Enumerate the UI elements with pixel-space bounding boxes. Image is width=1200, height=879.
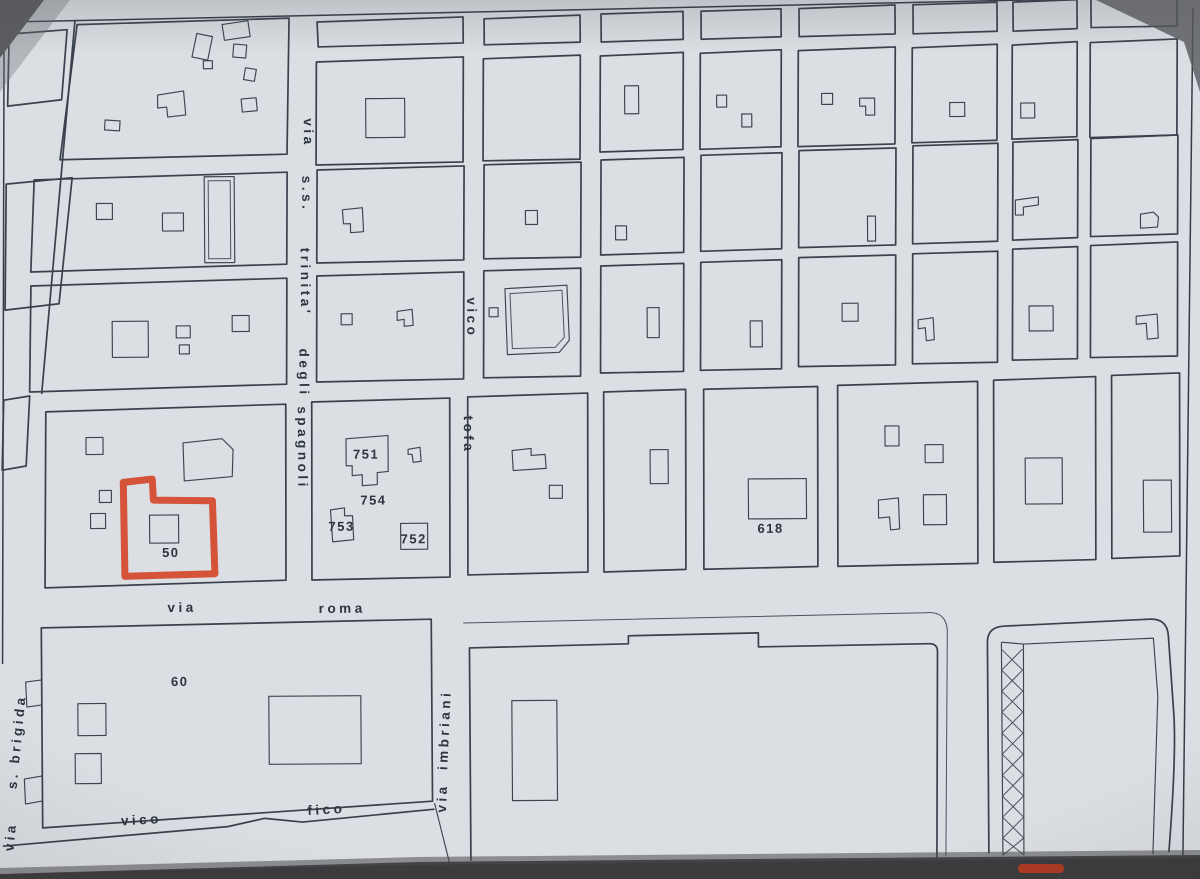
inner-block-lines	[1001, 638, 1159, 855]
city-block	[912, 251, 999, 364]
city-block	[699, 50, 782, 150]
building-footprint	[397, 309, 413, 326]
building-footprint	[867, 216, 875, 241]
building-cluster	[104, 21, 258, 131]
building-footprint	[822, 93, 833, 104]
city-block	[837, 381, 979, 566]
building-footprint	[505, 285, 569, 354]
parcel-number-752: 752	[401, 531, 427, 546]
building-footprint	[1021, 103, 1035, 118]
street-word: s.s.	[299, 176, 314, 213]
street-word: degli	[296, 349, 311, 398]
building-footprint	[650, 450, 668, 484]
building-footprint	[408, 447, 421, 462]
building-footprint	[616, 226, 627, 240]
city-block	[599, 52, 684, 152]
red-mark-bottom	[1018, 864, 1064, 873]
street-label-roma: via roma	[167, 599, 365, 617]
building-footprint	[925, 445, 943, 463]
building-footprint	[176, 326, 190, 338]
city-block	[41, 619, 432, 828]
highlighted-parcel-outline[interactable]	[123, 479, 215, 577]
building-footprint	[86, 437, 103, 454]
building-footprint	[179, 345, 189, 354]
city-block	[798, 148, 897, 248]
building-footprint	[512, 448, 546, 470]
building-footprint	[525, 210, 537, 224]
building-footprint	[1015, 197, 1038, 215]
city-block	[1089, 39, 1178, 138]
city-block	[912, 143, 999, 244]
city-block	[315, 57, 464, 165]
city-block	[316, 166, 465, 263]
city-block	[316, 272, 465, 382]
city-block	[1012, 247, 1079, 360]
city-block	[701, 9, 781, 40]
building-footprint	[24, 776, 42, 804]
building-footprint	[748, 479, 806, 519]
street-word: trinita'	[298, 248, 313, 317]
city-block	[993, 377, 1097, 563]
building-footprint	[878, 498, 899, 530]
building-footprint	[269, 696, 361, 765]
building-footprint	[75, 753, 101, 783]
city-block	[700, 260, 783, 371]
city-block	[482, 55, 581, 161]
building-footprint	[510, 290, 564, 348]
city-block	[603, 389, 687, 572]
city-block	[600, 263, 685, 373]
parcel-number-60: 60	[171, 674, 189, 689]
building-footprint	[647, 308, 659, 338]
city-block	[799, 5, 895, 37]
building-footprint	[923, 495, 946, 525]
city-block	[797, 47, 896, 147]
city-block	[1090, 242, 1179, 358]
cadastral-map-photo: via s.s. trinita' degli spagnoli vico to…	[0, 0, 1200, 879]
building-footprint	[885, 426, 899, 446]
building-footprint	[232, 315, 249, 331]
photo-edge-top-right	[1096, 0, 1200, 92]
city-block	[44, 404, 287, 588]
building-footprint	[78, 703, 106, 735]
building-footprint	[860, 98, 875, 115]
city-block	[600, 157, 685, 255]
building-footprint	[1140, 212, 1158, 228]
building-footprint	[1143, 480, 1171, 532]
building-footprint	[208, 181, 231, 259]
city-block	[798, 255, 897, 367]
building-footprint	[918, 318, 934, 341]
city-block	[1011, 42, 1078, 139]
city-block	[2, 396, 31, 470]
block-outer-curb	[463, 612, 949, 859]
building-footprint	[1025, 458, 1062, 504]
building-footprint	[625, 86, 639, 114]
city-block	[469, 632, 939, 861]
street-line-vico-fico	[3, 809, 435, 846]
building-footprint	[489, 308, 498, 317]
building-footprint	[150, 515, 179, 543]
building-footprint	[26, 680, 42, 707]
street-label-spagnoli: via s.s. trinita' degli spagnoli	[293, 118, 319, 490]
building-footprint	[750, 321, 762, 347]
city-block	[1111, 373, 1181, 558]
map-sheet: via s.s. trinita' degli spagnoli vico to…	[0, 0, 1199, 879]
street-word: imbriani	[435, 689, 454, 770]
building-footprint	[112, 321, 148, 357]
building-footprint	[512, 700, 558, 800]
street-word: vico	[464, 297, 479, 338]
city-block	[911, 44, 998, 143]
city-block	[467, 393, 589, 575]
city-block	[29, 278, 288, 392]
city-block	[987, 619, 1175, 853]
building-footprint	[1029, 306, 1053, 331]
building-footprint	[366, 98, 405, 137]
city-block	[59, 18, 290, 160]
city-block	[317, 17, 463, 47]
building-footprint	[96, 203, 112, 219]
street-word: via	[434, 783, 450, 813]
city-block	[4, 178, 73, 310]
parcel-number-618: 618	[757, 521, 783, 536]
parcel-number-751: 751	[353, 447, 379, 462]
city-block	[311, 398, 451, 580]
street-word: tofa	[461, 415, 476, 454]
building-footprint	[717, 95, 727, 107]
city-block	[484, 15, 580, 45]
city-block	[601, 11, 683, 42]
photo-edge-top-left-fade	[0, 0, 70, 92]
street-word: vico	[120, 811, 162, 828]
city-block	[1090, 135, 1179, 237]
city-block	[30, 172, 288, 272]
city-block	[913, 2, 997, 34]
sheet-border-top	[3, 0, 1092, 22]
parcel-number-754: 754	[360, 492, 386, 507]
parcel-number-753: 753	[328, 519, 354, 534]
city-block	[703, 386, 819, 569]
street-word: via	[301, 118, 316, 147]
sheet-border-left	[0, 22, 9, 664]
building-footprint	[950, 102, 965, 116]
building-footprint	[162, 213, 183, 231]
city-block	[483, 268, 582, 378]
hatched-strip	[1001, 649, 1023, 855]
street-word: s. brigida	[5, 694, 29, 790]
city-block	[1013, 0, 1077, 31]
street-word: via	[167, 600, 196, 615]
building-footprint	[1136, 314, 1158, 339]
city-block	[1012, 140, 1079, 240]
city-block	[700, 153, 783, 252]
street-word: via	[1, 821, 19, 852]
diagonal-street-line	[39, 20, 78, 394]
building-footprint	[742, 114, 752, 127]
building-footprint	[549, 485, 562, 498]
street-word: spagnoli	[295, 406, 311, 490]
building-footprint	[183, 439, 233, 481]
building-footprint	[842, 303, 858, 321]
building-footprint	[342, 208, 363, 233]
street-label-imbriani: via imbriani	[433, 689, 455, 813]
street-word: roma	[319, 601, 366, 616]
building-footprint	[91, 513, 106, 528]
street-word: fico	[307, 801, 346, 818]
parcel-number-50[interactable]: 50	[162, 545, 180, 560]
building-footprint	[341, 314, 352, 325]
building-footprint	[99, 490, 111, 502]
city-plan-map: via s.s. trinita' degli spagnoli vico to…	[0, 0, 1200, 879]
street-label-brigida: via s. brigida	[0, 693, 30, 852]
